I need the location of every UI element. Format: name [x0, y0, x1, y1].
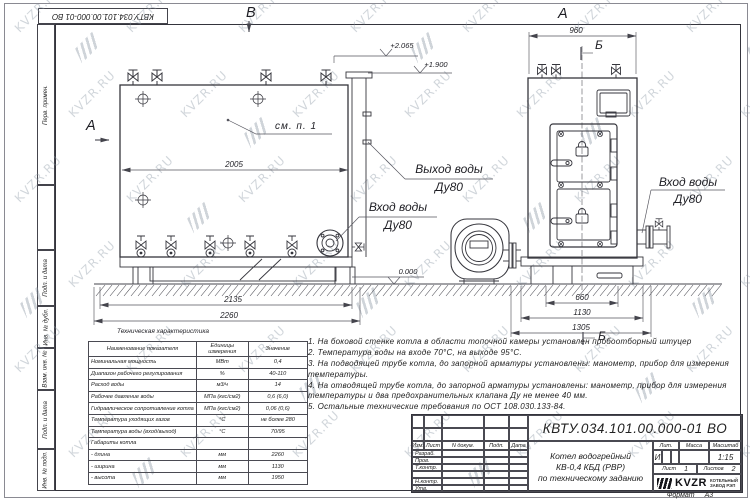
spec-table-row: - длинамм2260	[89, 449, 308, 461]
titleblock-grid-cell	[509, 428, 528, 441]
spec-table-cell: не более 280	[248, 414, 307, 426]
elevation-chimney: +1.900	[416, 61, 456, 69]
spec-table-row: Номинальная мощностьМВт0,4	[89, 357, 308, 369]
titleblock-grid-cell: Дата	[509, 441, 528, 450]
company-logo-cell: KVZR КОТЕЛЬНЫЙ ЗАВОД РЭП	[653, 474, 742, 492]
stamp-box-sprav	[37, 185, 55, 250]
lit-cell-2	[662, 450, 671, 464]
spec-table-cell: 0,6 (6,0)	[248, 391, 307, 403]
sheets-value: 2	[732, 466, 736, 473]
spec-table-cell: 1950	[248, 472, 307, 484]
dim-2135: 2135	[211, 296, 255, 304]
spec-header-name: Наименование показателя	[89, 342, 197, 357]
spec-table-row: Габариты котла	[89, 438, 308, 450]
product-title-line3: по техническому заданию	[538, 473, 643, 483]
stamp-box-perv-primen: Перв. примен.	[37, 24, 55, 185]
spec-table-cell: м3/ч	[196, 380, 248, 392]
view-marker-v-top: В	[246, 6, 264, 21]
titleblock-grid-cell	[509, 415, 528, 428]
titleblock-grid-cell: Разраб.	[412, 450, 442, 457]
spec-table-row: Температура уходящих газов°Сне более 280	[89, 414, 308, 426]
titleblock-grid-cell	[484, 457, 509, 464]
titleblock-grid-cell	[509, 478, 528, 485]
stamp-box-podp-data-1: Подп. и дата	[37, 250, 55, 306]
dim-1130: 1130	[558, 309, 606, 317]
spec-table-cell: МВт	[196, 357, 248, 369]
spec-table-title: Техническая характеристика	[88, 329, 238, 336]
format-note: Формат А3	[640, 492, 740, 499]
stamp-box-vzam-inv: Взам. инв. №	[37, 348, 55, 390]
spec-table-row: Рабочее давление водыМПа (кгс/см2)0,6 (6…	[89, 391, 308, 403]
inlet-left-label-line2: Ду80	[358, 219, 438, 232]
titleblock-grid-cell	[412, 471, 442, 478]
titleblock-grid-cell	[442, 464, 484, 471]
dim-1305: 1305	[557, 324, 605, 332]
spec-table-cell: 1130	[248, 461, 307, 473]
spec-table-cell: 14	[248, 380, 307, 392]
dim-660: 660	[560, 294, 604, 302]
spec-table: Наименование показателя Единицы измерени…	[88, 341, 308, 485]
titleblock-grid-cell	[484, 450, 509, 457]
mass-label: Масса	[679, 441, 709, 450]
titleblock-grid-cell	[509, 471, 528, 478]
spec-table-cell: мм	[196, 472, 248, 484]
sheets-cell: Листов 2	[697, 464, 742, 474]
titleblock-grid-cell: N докум.	[442, 441, 484, 450]
titleblock-grid-cell	[442, 478, 484, 485]
spec-table-cell: 0,06 (0,6)	[248, 403, 307, 415]
titleblock-grid-cell	[484, 478, 509, 485]
sheet-label: Лист	[662, 466, 676, 472]
dim-960: 960	[562, 27, 590, 35]
titleblock-grid-cell	[442, 457, 484, 464]
spec-table-cell: 0,4	[248, 357, 307, 369]
lit-cell-3	[671, 450, 679, 464]
elevation-top: +2.065	[384, 42, 420, 50]
titleblock-grid-cell: Т.контр.	[412, 464, 442, 471]
format-label: Формат	[667, 492, 695, 499]
titleblock-grid-cell	[442, 471, 484, 478]
kvzr-logo-caption: КОТЕЛЬНЫЙ ЗАВОД РЭП	[710, 478, 738, 489]
spec-table-row: Расход водым3/ч14	[89, 380, 308, 392]
titleblock-grid-cell: Пров.	[412, 457, 442, 464]
inlet-right-label-line1: Вход воды	[650, 176, 726, 189]
note-5: 5. Остальные технические требования по О…	[308, 402, 736, 412]
titleblock-grid-cell	[424, 415, 442, 428]
spec-table-cell: мм	[196, 461, 248, 473]
callout-see-note-1: см. п. 1	[258, 122, 334, 133]
section-marker-a-left: А	[86, 119, 104, 134]
spec-table-cell: - высота	[89, 472, 197, 484]
view-marker-a-right: А	[558, 7, 576, 22]
scale-value: 1:15	[709, 450, 742, 464]
drawing-sheet: KVZR.RUKVZR.RUKVZR.RUKVZR.RUKVZR.RUKVZR.…	[0, 0, 750, 500]
titleblock-grid-cell	[509, 450, 528, 457]
sheets-label: Листов	[704, 466, 724, 472]
title-block: Изм.ЛистN докум.Подп.ДатаРазраб.Пров.Т.к…	[411, 414, 743, 493]
spec-table-cell: Расход воды	[89, 380, 197, 392]
spec-table-row: Диапазон рабочего регулирования%40-110	[89, 368, 308, 380]
elevation-ground: 0.000	[390, 268, 426, 276]
section-marker-b-top: Б	[595, 39, 609, 52]
spec-table-cell: Температура воды (вход/выход)	[89, 426, 197, 438]
titleblock-grid-cell	[412, 428, 424, 441]
mass-value	[679, 450, 709, 464]
dim-2005: 2005	[212, 161, 256, 169]
spec-table-row: Гидравлическое сопротивление котлаМПа (к…	[89, 403, 308, 415]
titleblock-grid-cell: Подп.	[484, 441, 509, 450]
titleblock-grid-cell	[442, 428, 484, 441]
note-2: 2. Температура воды на входе 70°С, на вы…	[308, 348, 736, 358]
titleblock-grid-cell	[509, 485, 528, 492]
spec-table-cell: %	[196, 368, 248, 380]
sheet-cell: Лист 1	[653, 464, 697, 474]
titleblock-grid-cell: Утв.	[412, 485, 442, 492]
lit-value: И	[653, 450, 662, 464]
titleblock-grid-cell	[442, 485, 484, 492]
spec-table-cell: Номинальная мощность	[89, 357, 197, 369]
note-1: 1. На боковой стенке котла в области топ…	[308, 337, 736, 347]
titleblock-grid-cell	[442, 450, 484, 457]
spec-header-value: Значение	[248, 342, 307, 357]
stamp-box-inv-dubl: Инв. № дубл.	[37, 306, 55, 348]
format-value: А3	[705, 492, 714, 499]
spec-table-cell: МПа (кгс/см2)	[196, 391, 248, 403]
doc-number: КВТУ.034.101.00.000-01 ВО	[528, 415, 742, 441]
titleblock-grid-cell	[442, 415, 484, 428]
dim-2260: 2260	[205, 312, 253, 320]
spec-table-cell: Габариты котла	[89, 438, 197, 450]
logo-caption-line2: ЗАВОД РЭП	[710, 483, 738, 488]
inlet-left-label-line1: Вход воды	[358, 201, 438, 214]
titleblock-grid-cell	[484, 428, 509, 441]
spec-table-row: - ширинамм1130	[89, 461, 308, 473]
sheet-value: 1	[684, 466, 688, 473]
scale-label: Масштаб	[709, 441, 742, 450]
product-title: Котел водогрейный КВ-0,4 КБД (РВР) по те…	[528, 441, 653, 492]
spec-table-cell: мм	[196, 449, 248, 461]
product-title-line1: Котел водогрейный	[550, 451, 631, 461]
spec-table-cell: °С	[196, 414, 248, 426]
titleblock-grid-cell	[424, 428, 442, 441]
spec-table-cell: 2260	[248, 449, 307, 461]
note-4: 4. На отводящей трубе котла, до запорной…	[308, 381, 736, 401]
spec-table-cell: Диапазон рабочего регулирования	[89, 368, 197, 380]
titleblock-grid-cell	[509, 457, 528, 464]
kvzr-logo-text: KVZR	[675, 477, 707, 489]
spec-table-cell: Температура уходящих газов	[89, 414, 197, 426]
spec-table-cell: 40-110	[248, 368, 307, 380]
spec-table-row: Температура воды (вход/выход)°С70/95	[89, 426, 308, 438]
titleblock-grid-cell	[509, 464, 528, 471]
titleblock-grid-cell: Н.контр.	[412, 478, 442, 485]
spec-table-cell: - ширина	[89, 461, 197, 473]
titleblock-grid-cell	[484, 464, 509, 471]
notes-block: 1. На боковой стенке котла в области топ…	[308, 337, 736, 414]
titleblock-grid-cell	[484, 415, 509, 428]
doc-number-rotated-box: КВТУ.034.101.00.000-01 ВО	[38, 8, 168, 24]
spec-table-cell: 70/95	[248, 426, 307, 438]
spec-table-cell: - длина	[89, 449, 197, 461]
spec-table-cell: °С	[196, 426, 248, 438]
spec-table-cell	[196, 438, 248, 450]
titleblock-grid-cell	[484, 485, 509, 492]
lit-label: Лит.	[653, 441, 679, 450]
spec-table-cell	[248, 438, 307, 450]
titleblock-grid-cell: Лист	[424, 441, 442, 450]
stamp-box-podp-data-2: Подп. и дата	[37, 390, 55, 449]
inlet-right-label-line2: Ду80	[650, 193, 726, 206]
spec-header-units: Единицы измерения	[196, 342, 248, 357]
spec-table-cell: Рабочее давление воды	[89, 391, 197, 403]
titleblock-grid-cell	[412, 415, 424, 428]
doc-number-rotated: КВТУ.034.101.00.000-01 ВО	[52, 12, 154, 21]
note-3: 3. На подводящей трубе котла, до запорно…	[308, 359, 736, 379]
titleblock-grid-cell	[484, 471, 509, 478]
spec-table-cell: МПа (кгс/см2)	[196, 403, 248, 415]
product-title-line2: КВ-0,4 КБД (РВР)	[556, 462, 625, 472]
titleblock-grid-cell: Изм.	[412, 441, 424, 450]
stamp-box-inv-podl: Инв. № подл.	[37, 449, 55, 491]
outlet-label-line2: Ду80	[404, 181, 494, 194]
spec-table-cell: Гидравлическое сопротивление котла	[89, 403, 197, 415]
kvzr-spring-icon	[657, 478, 672, 489]
outlet-label-line1: Выход воды	[404, 163, 494, 176]
spec-table-row: - высотамм1950	[89, 472, 308, 484]
